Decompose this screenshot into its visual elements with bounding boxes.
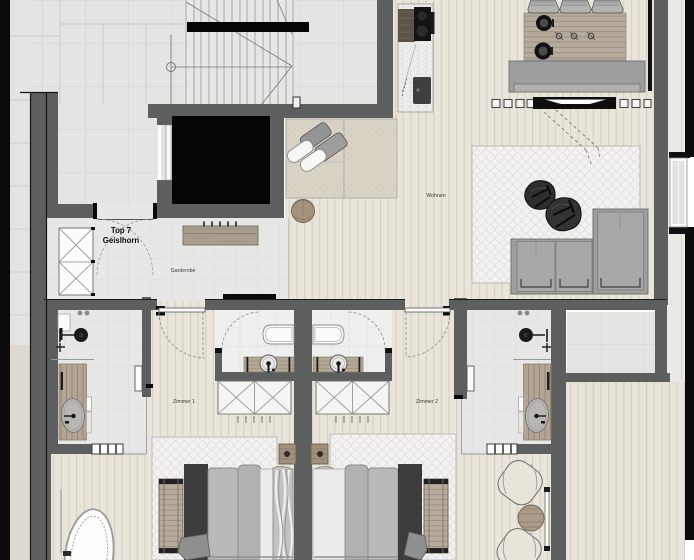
- svg-text:Garderobe: Garderobe: [171, 268, 196, 274]
- svg-text:Zimmer 2: Zimmer 2: [416, 399, 438, 405]
- svg-text:Wohnen: Wohnen: [426, 193, 445, 199]
- svg-text:Geislhorn: Geislhorn: [103, 236, 140, 245]
- svg-text:Top 7: Top 7: [111, 226, 131, 235]
- svg-text:Zimmer 1: Zimmer 1: [173, 399, 195, 405]
